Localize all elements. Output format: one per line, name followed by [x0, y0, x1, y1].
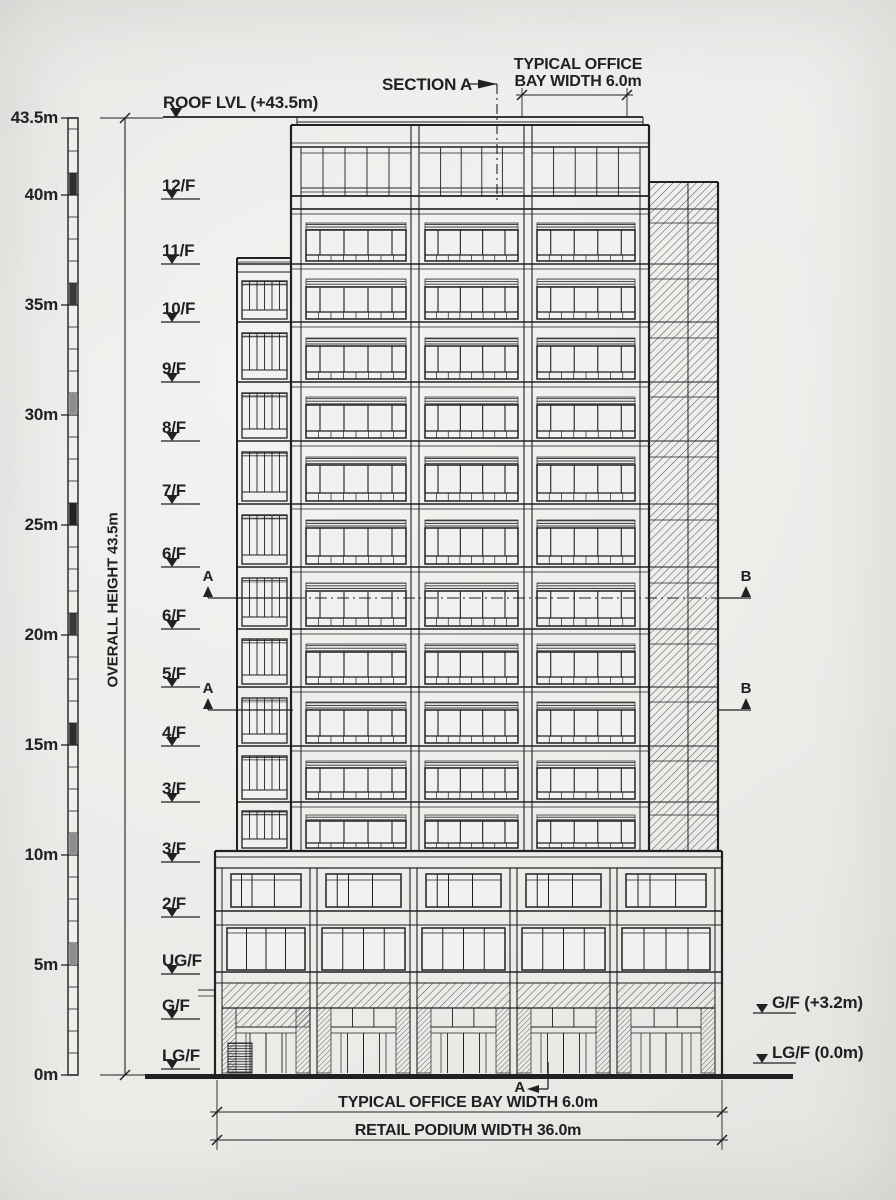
- section-marker-a-bottom: A: [503, 1080, 525, 1095]
- scale-label: 15m: [0, 736, 58, 753]
- scale-label: 20m: [0, 626, 58, 643]
- scale-label: 5m: [0, 956, 58, 973]
- scale-label: 10m: [0, 846, 58, 863]
- section-marker-a: A: [198, 681, 218, 696]
- scale-label: 30m: [0, 406, 58, 423]
- floor-level-label: 12/F: [162, 177, 222, 194]
- right-level-label: LG/F (0.0m): [772, 1044, 896, 1061]
- top-dim-label-line1: TYPICAL OFFICE: [508, 57, 648, 73]
- elevation-sheet: 43.5m40m35m30m25m20m15m10m5m0mROOF LVL (…: [0, 0, 896, 1200]
- section-marker-a: A: [198, 569, 218, 584]
- scale-label: 40m: [0, 186, 58, 203]
- floor-level-label: LG/F: [162, 1047, 222, 1064]
- floor-level-label: 2/F: [162, 895, 222, 912]
- floor-level-label: 8/F: [162, 419, 222, 436]
- section-a-label: SECTION A: [382, 76, 466, 93]
- floor-level-label: 7/F: [162, 482, 222, 499]
- floor-level-label: UG/F: [162, 952, 222, 969]
- scale-label: 25m: [0, 516, 58, 533]
- overall-height-label: OVERALL HEIGHT 43.5m: [106, 513, 121, 688]
- floor-level-label: 5/F: [162, 665, 222, 682]
- floor-level-label: 3/F: [162, 840, 222, 857]
- bottom-dim-label: TYPICAL OFFICE BAY WIDTH 6.0m: [218, 1095, 718, 1111]
- floor-level-label: 3/F: [162, 780, 222, 797]
- annotation-layer: 43.5m40m35m30m25m20m15m10m5m0mROOF LVL (…: [0, 0, 896, 1200]
- floor-level-label: 6/F: [162, 545, 222, 562]
- top-dim-label-line2: BAY WIDTH 6.0m: [508, 74, 648, 90]
- floor-level-label: G/F: [162, 997, 222, 1014]
- scale-label: 0m: [0, 1066, 58, 1083]
- section-marker-b: B: [736, 569, 756, 584]
- section-marker-b: B: [736, 681, 756, 696]
- floor-level-label: 9/F: [162, 360, 222, 377]
- roof-level-label: ROOF LVL (+43.5m): [163, 94, 318, 111]
- right-level-label: G/F (+3.2m): [772, 994, 896, 1011]
- floor-level-label: 11/F: [162, 242, 222, 259]
- bottom-dim-label: RETAIL PODIUM WIDTH 36.0m: [218, 1123, 718, 1139]
- scale-label: 35m: [0, 296, 58, 313]
- floor-level-label: 6/F: [162, 607, 222, 624]
- scale-label: 43.5m: [0, 109, 58, 126]
- floor-level-label: 10/F: [162, 300, 222, 317]
- floor-level-label: 4/F: [162, 724, 222, 741]
